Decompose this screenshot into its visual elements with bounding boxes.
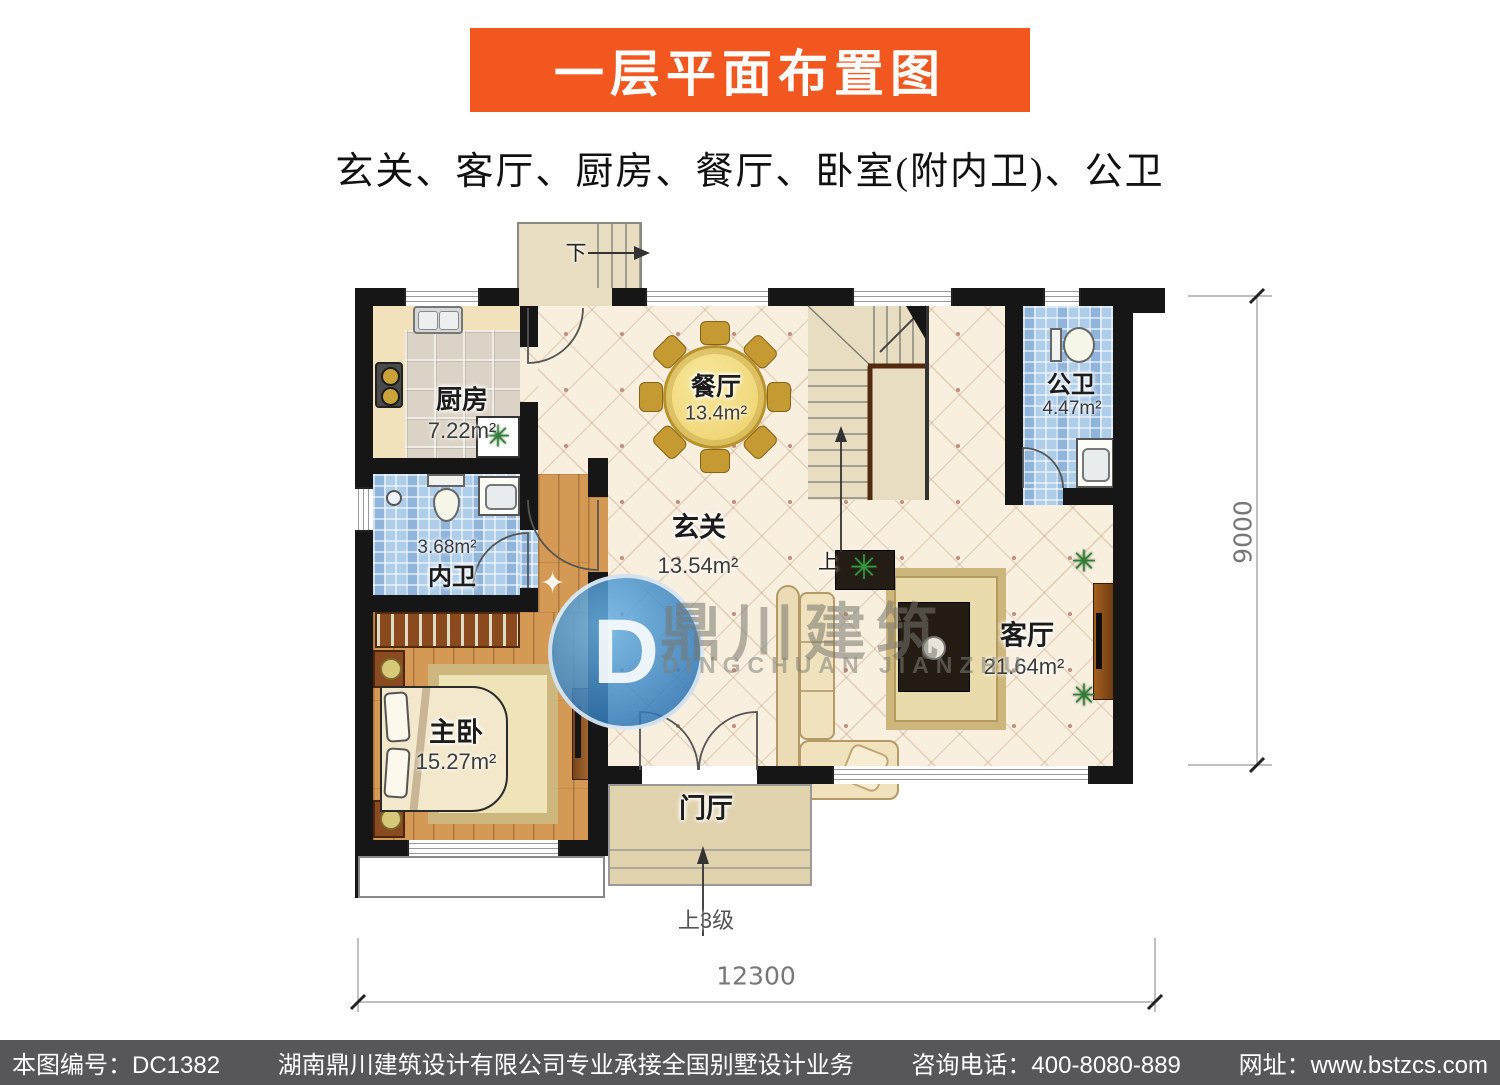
kitchen-sink-basin bbox=[439, 311, 459, 330]
stair-down-label: 下 bbox=[566, 237, 587, 267]
footer-bar: 本图编号：DC1382 湖南鼎川建筑设计有限公司专业承接全国别墅设计业务 咨询电… bbox=[0, 1040, 1500, 1085]
stair-window bbox=[852, 288, 953, 306]
watermark-name-latin: DINGCHUAN JIANZHU bbox=[662, 652, 1028, 679]
dining-chair bbox=[700, 449, 730, 473]
wall-top-right-jut bbox=[1133, 288, 1165, 313]
masterbed-area: 15.27m² bbox=[416, 749, 497, 775]
innerbath-window bbox=[355, 487, 373, 532]
public-bath-basin bbox=[1082, 448, 1110, 482]
publicbath-label: 公卫 bbox=[1047, 365, 1095, 400]
publicbath-area: 4.47m² bbox=[1042, 398, 1101, 420]
wall-right bbox=[1113, 288, 1133, 784]
tv bbox=[1096, 613, 1102, 669]
page-title: 一层平面布置图 bbox=[554, 34, 946, 106]
bed-pillow bbox=[383, 691, 410, 743]
wall-innerbath-bottom bbox=[355, 595, 538, 612]
watermark-logo-letter: D bbox=[593, 600, 659, 705]
wall-left bbox=[355, 288, 373, 898]
masterbed-label: 主卧 bbox=[429, 711, 483, 750]
dining-chair bbox=[700, 321, 730, 345]
wall-entry-left bbox=[608, 766, 642, 784]
kitchen-doorway bbox=[520, 347, 538, 402]
stove-burner bbox=[381, 387, 400, 406]
entry-steps-label: 上3级 bbox=[678, 903, 734, 935]
wall-kitchen-bottom bbox=[355, 458, 538, 474]
title-banner: 一层平面布置图 bbox=[470, 28, 1030, 112]
bedroom-porch bbox=[358, 856, 605, 898]
living-window bbox=[832, 766, 1090, 784]
public-bath-toilet bbox=[1063, 327, 1095, 363]
stair-rail-wall bbox=[925, 306, 929, 500]
bed-pillow bbox=[383, 747, 410, 799]
watermark-star-icon: ✦ bbox=[540, 566, 565, 601]
entryhall-label: 门厅 bbox=[679, 787, 733, 826]
nightstand-lamp bbox=[380, 658, 402, 680]
dining-area: 13.4m² bbox=[685, 403, 747, 426]
foyer-area: 13.54m² bbox=[658, 553, 739, 579]
wall-publicbath-left bbox=[1005, 288, 1023, 505]
dimension-height: 9000 bbox=[1229, 500, 1258, 564]
publicbath-doorway bbox=[1023, 488, 1063, 505]
public-bath-toilet-tank bbox=[1050, 328, 1062, 362]
stair-floor bbox=[808, 306, 925, 500]
footer-website: 网址：www.bstzcs.com bbox=[1239, 1045, 1488, 1080]
wall-entry-right bbox=[757, 766, 832, 784]
page-subtitle: 玄关、客厅、厨房、餐厅、卧室(附内卫)、公卫 bbox=[0, 140, 1500, 195]
dining-chair bbox=[639, 382, 663, 412]
dining-window bbox=[645, 288, 770, 306]
kitchen-sink-basin bbox=[418, 311, 438, 330]
dining-chair bbox=[767, 382, 791, 412]
wardrobe bbox=[375, 612, 520, 648]
dimension-width: 12300 bbox=[716, 962, 796, 991]
footer-phone: 咨询电话：400-8080-889 bbox=[911, 1045, 1180, 1080]
innerbath-doorway bbox=[520, 530, 538, 588]
footer-plan-number: 本图编号：DC1382 bbox=[12, 1045, 220, 1080]
stove-burner bbox=[381, 367, 400, 386]
inner-bath-toilet-tank bbox=[427, 474, 465, 487]
publicbath-window bbox=[1043, 288, 1081, 306]
bedroom-doorway bbox=[588, 497, 608, 572]
inner-bath-basin bbox=[485, 484, 517, 510]
foyer-label: 玄关 bbox=[672, 506, 726, 545]
kitchen-window bbox=[404, 288, 480, 306]
dining-label: 餐厅 bbox=[691, 367, 741, 403]
shower-head-icon bbox=[386, 490, 402, 506]
kitchen-label: 厨房 bbox=[436, 380, 488, 417]
stair-up-label: 上 bbox=[818, 546, 838, 575]
innerbath-label: 内卫 bbox=[428, 557, 476, 592]
footer-company: 湖南鼎川建筑设计有限公司专业承接全国别墅设计业务 bbox=[278, 1045, 854, 1080]
plant-icon: ✳ bbox=[1071, 545, 1096, 580]
floor-plan-page: 一层平面布置图 玄关、客厅、厨房、餐厅、卧室(附内卫)、公卫 ✳ bbox=[0, 0, 1500, 1085]
vestibule-doorway bbox=[519, 288, 612, 306]
living-label: 客厅 bbox=[1000, 614, 1054, 653]
plant-icon: ✳ bbox=[1071, 679, 1096, 714]
kitchen-area: 7.22m² bbox=[428, 418, 496, 444]
